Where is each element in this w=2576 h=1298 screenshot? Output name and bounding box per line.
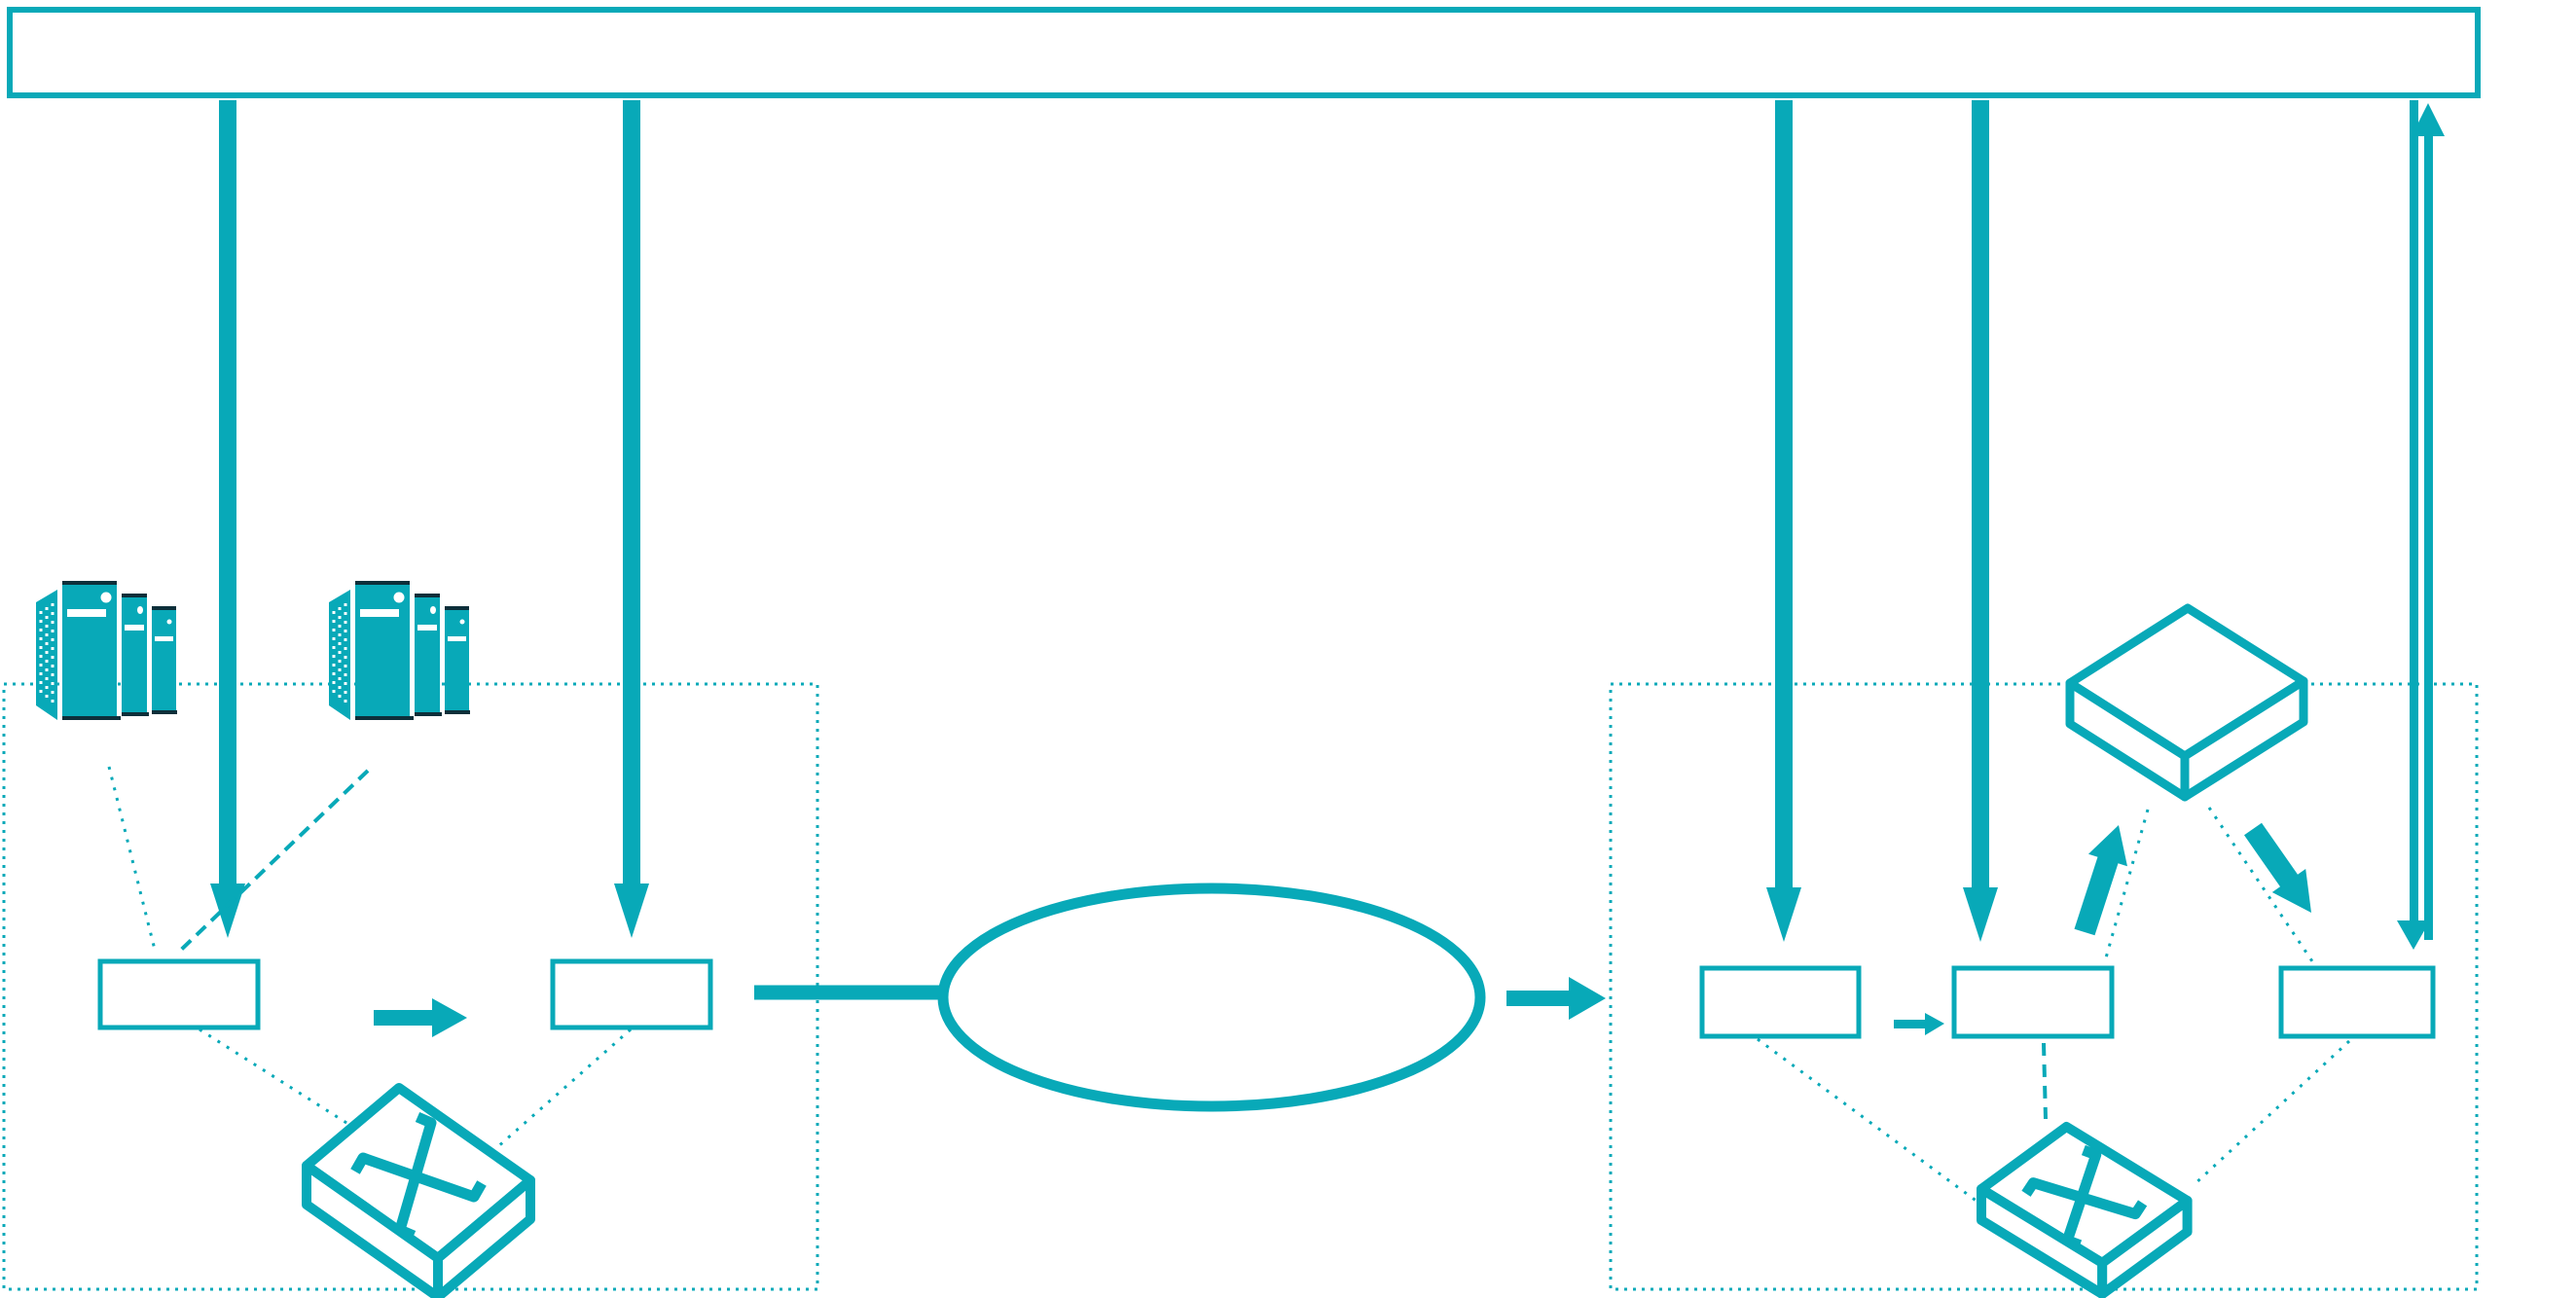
left-box-2 <box>553 961 710 1028</box>
network-diagram <box>0 0 2576 1298</box>
top-banner <box>10 10 2478 95</box>
left-box-1 <box>100 961 258 1028</box>
left-box1-to-box2-arrow <box>374 998 467 1037</box>
flat-slab-device-icon <box>2070 608 2304 797</box>
banner-down-arrow-4 <box>1963 100 1998 942</box>
server-stack-icon <box>36 581 177 720</box>
ellipse-to-right-zone-arrow <box>1506 977 1606 1020</box>
server1-to-box1-link <box>109 767 156 954</box>
switch-icon <box>307 1088 530 1297</box>
right-box-3 <box>2281 968 2433 1036</box>
banner-down-arrow-2 <box>614 100 649 938</box>
switch-icon <box>1981 1127 2188 1294</box>
rightbox2-to-distributor-arrow <box>2075 825 2128 935</box>
server-stack-icon <box>329 581 470 720</box>
right-box-1 <box>1702 968 1859 1036</box>
network-ellipse-icon <box>943 888 1480 1106</box>
right-box-2 <box>1954 968 2112 1036</box>
banner-down-arrow-1 <box>210 100 245 938</box>
rightbox2-to-switch-link <box>2044 1043 2046 1119</box>
rightbox1-to-switch-link <box>1758 1039 1981 1205</box>
server2-to-box1-link <box>177 771 368 954</box>
distributor-to-rightbox3-arrow <box>2244 823 2311 913</box>
box2-to-switch-link <box>496 1029 631 1148</box>
rightbox1-to-rightbox2-arrow <box>1894 1013 1944 1035</box>
diagram-canvas <box>0 0 2576 1298</box>
rightbox3-to-switch-link <box>2194 1041 2349 1185</box>
banner-down-arrow-3 <box>1766 100 1801 942</box>
